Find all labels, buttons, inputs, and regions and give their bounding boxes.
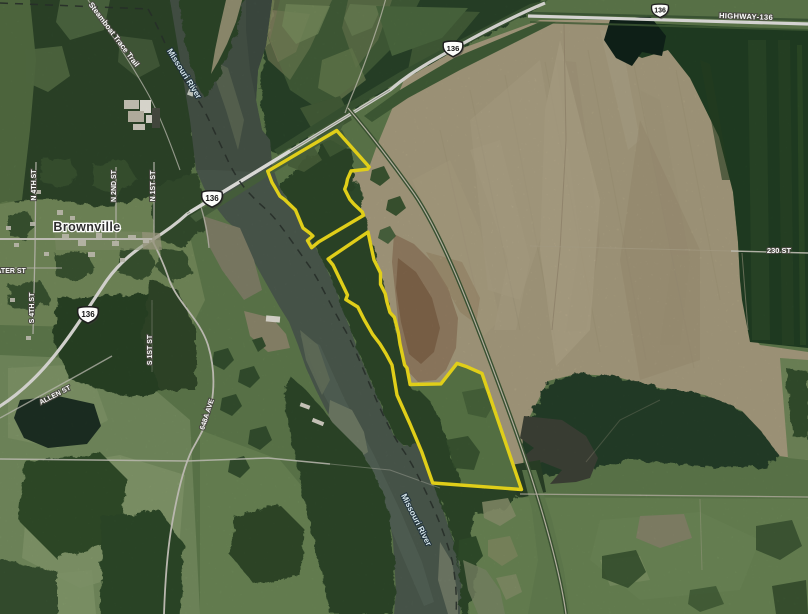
svg-text:N 4TH ST: N 4TH ST <box>31 169 38 201</box>
svg-text:N 2ND ST: N 2ND ST <box>111 169 118 202</box>
svg-text:136: 136 <box>81 310 95 319</box>
svg-text:136: 136 <box>654 7 666 14</box>
svg-text:S 4TH ST: S 4TH ST <box>29 292 36 323</box>
svg-text:WATER ST: WATER ST <box>0 268 27 275</box>
svg-text:136: 136 <box>205 194 219 203</box>
svg-text:N 1ST ST: N 1ST ST <box>150 170 157 201</box>
svg-text:230 ST: 230 ST <box>767 246 792 255</box>
svg-text:Brownville: Brownville <box>53 220 120 234</box>
svg-text:136: 136 <box>447 44 460 53</box>
svg-text:HIGHWAY-136: HIGHWAY-136 <box>719 11 773 22</box>
svg-text:S 1ST ST: S 1ST ST <box>147 334 154 365</box>
